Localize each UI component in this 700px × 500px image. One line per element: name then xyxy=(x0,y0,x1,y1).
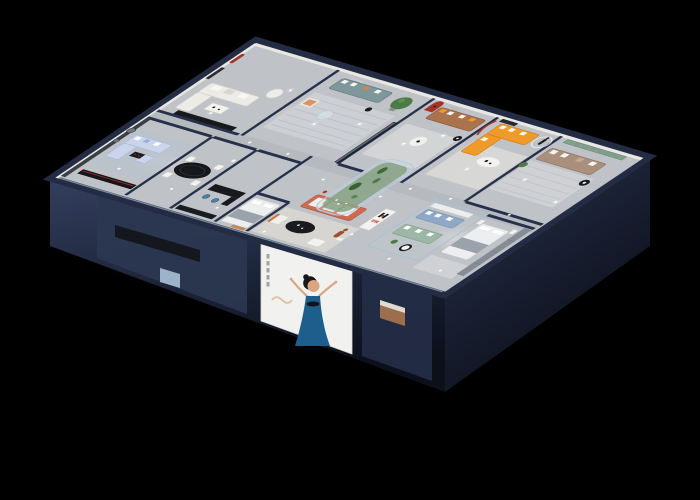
woman-head xyxy=(308,280,320,292)
woman-belt xyxy=(307,302,320,307)
woman-hair-bun xyxy=(303,274,309,280)
showroom-3d-render: 华悦 xyxy=(0,0,700,500)
showroom-scene: 华悦 xyxy=(0,0,700,500)
